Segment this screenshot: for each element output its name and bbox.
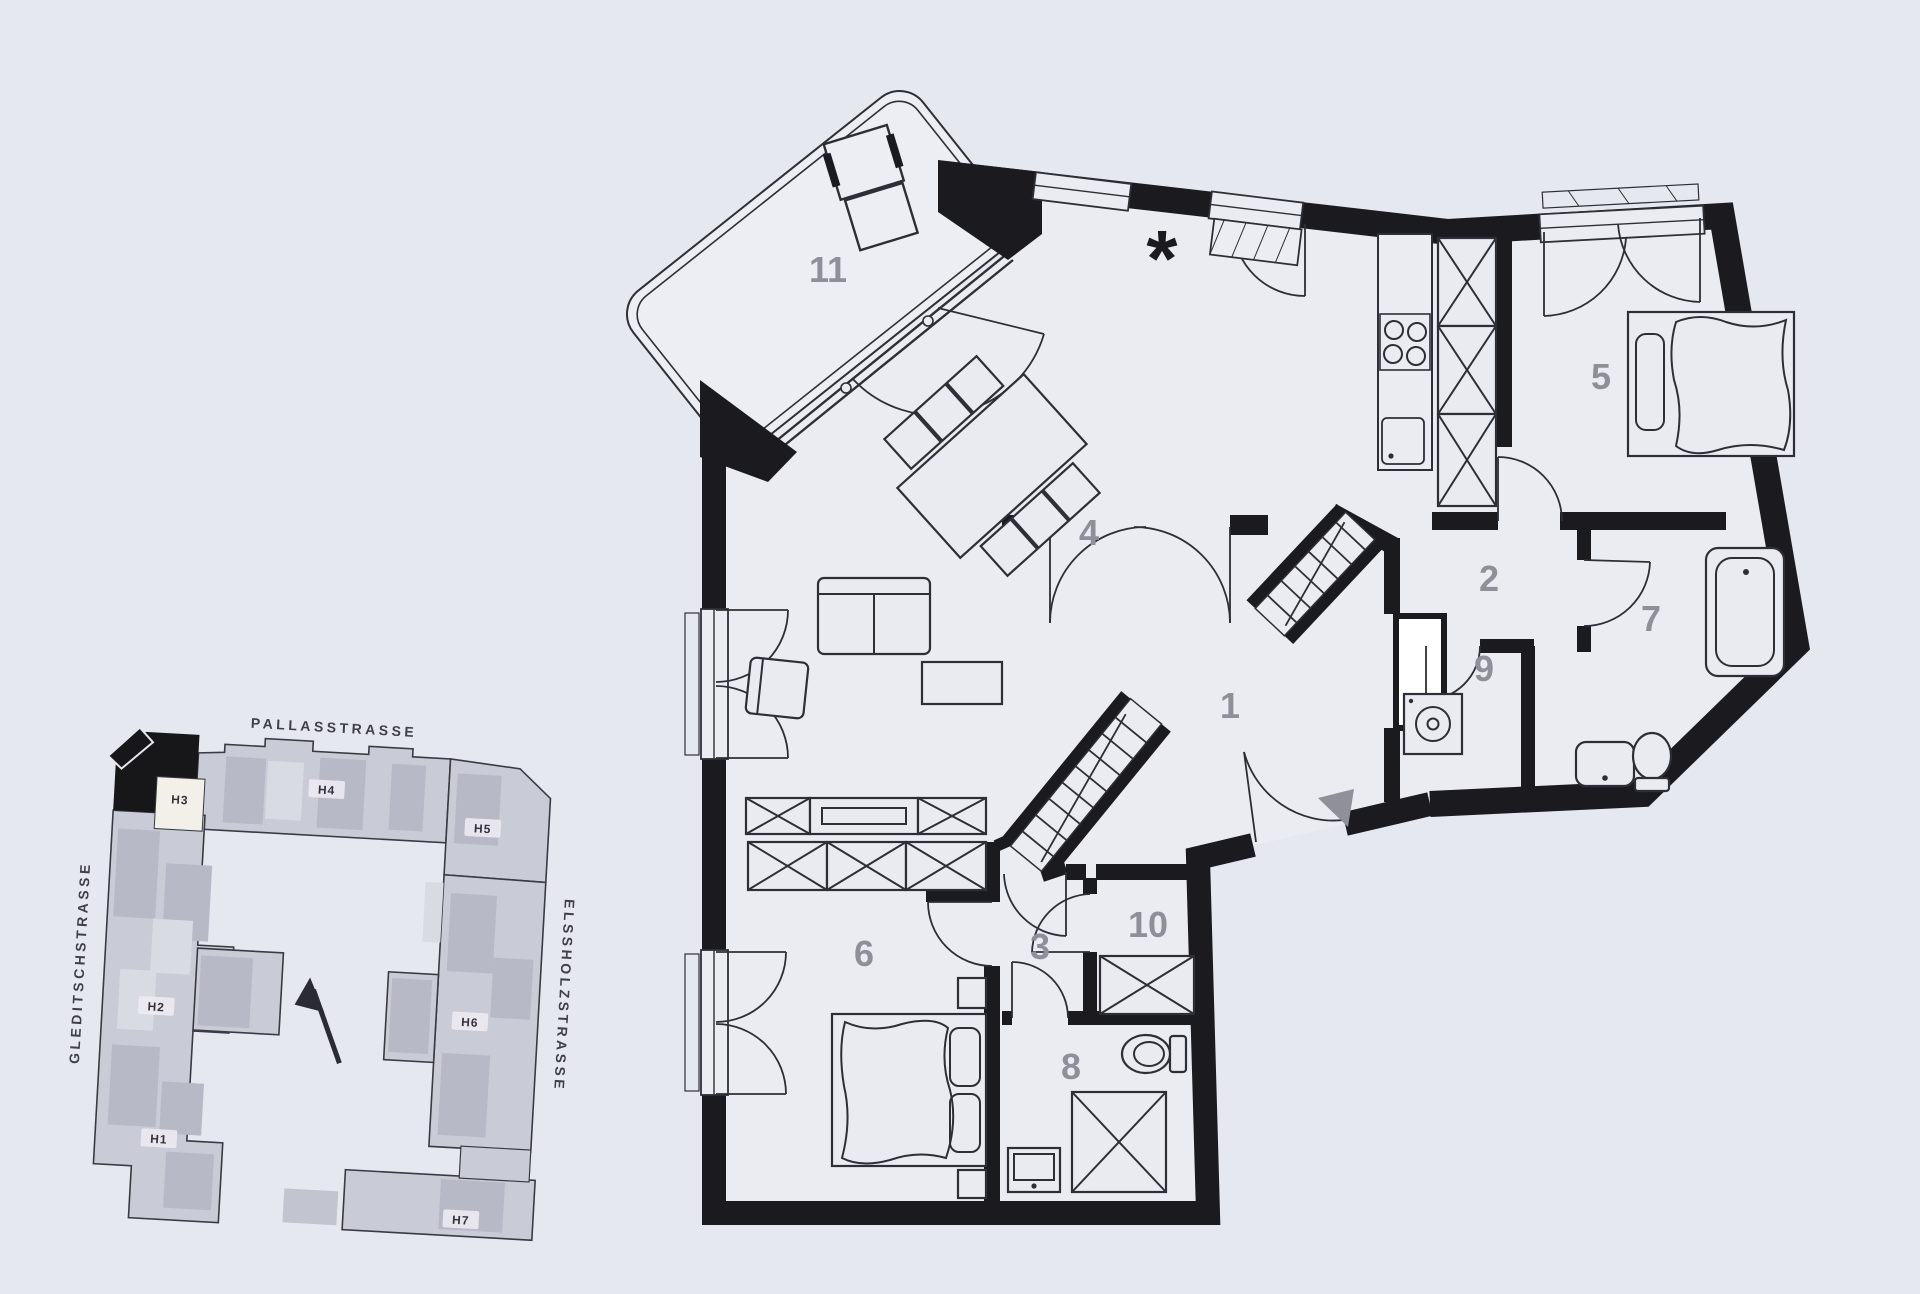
storage-shelf-10 bbox=[1100, 956, 1194, 1014]
room-label-1: 1 bbox=[1220, 685, 1240, 726]
floorplan-drawing: H3 H4 H5 H2 H6 H1 H7 PALLASSTRASSE GLEDI… bbox=[0, 0, 1920, 1294]
window-room5 bbox=[1538, 184, 1704, 243]
wardrobe-row-1 bbox=[746, 798, 986, 834]
nightstand-bottom bbox=[958, 1170, 986, 1198]
room-label-8: 8 bbox=[1061, 1046, 1081, 1087]
bedroom-5 bbox=[1628, 312, 1794, 456]
room-label-2: 2 bbox=[1479, 558, 1499, 599]
apartment-plan: 11 bbox=[615, 79, 1796, 1213]
building-label-h1: H1 bbox=[150, 1132, 168, 1147]
sink-7 bbox=[1576, 742, 1634, 786]
washing-machine-icon bbox=[1404, 694, 1462, 754]
stove bbox=[1380, 314, 1430, 370]
room-label-6: 6 bbox=[854, 933, 874, 974]
bathtub bbox=[1706, 548, 1784, 676]
north-arrow-icon bbox=[291, 977, 344, 1064]
building-label-h5: H5 bbox=[474, 821, 492, 836]
sofa bbox=[818, 578, 930, 654]
building-label-h7: H7 bbox=[452, 1213, 470, 1228]
street-label-pallasstrasse: PALLASSTRASSE bbox=[251, 715, 418, 740]
room-label-4: 4 bbox=[1079, 512, 1099, 553]
armchair bbox=[745, 657, 809, 719]
nightstand-top bbox=[958, 978, 986, 1008]
site-building-right-connector bbox=[459, 1146, 531, 1182]
room-label-7: 7 bbox=[1641, 598, 1661, 639]
floorplan-page: H3 H4 H5 H2 H6 H1 H7 PALLASSTRASSE GLEDI… bbox=[0, 0, 1920, 1294]
room-label-10: 10 bbox=[1128, 904, 1168, 945]
tall-cabinets bbox=[1438, 238, 1496, 506]
toilet-8 bbox=[1122, 1035, 1186, 1073]
site-plan: H3 H4 H5 H2 H6 H1 H7 PALLASSTRASSE GLEDI… bbox=[58, 706, 588, 1242]
street-label-elssholzstrasse: ELSSHOLZSTRASSE bbox=[551, 899, 578, 1093]
building-label-h4: H4 bbox=[318, 783, 336, 798]
toilet-7 bbox=[1633, 733, 1671, 791]
street-label-gleditschstrasse: GLEDITSCHSTRASSE bbox=[66, 861, 93, 1065]
room-label-5: 5 bbox=[1591, 356, 1611, 397]
building-label-h2: H2 bbox=[147, 999, 165, 1014]
coffee-table bbox=[922, 662, 1002, 704]
shower bbox=[1072, 1092, 1166, 1192]
window-living bbox=[685, 609, 728, 759]
wardrobe-row-2 bbox=[748, 842, 986, 890]
bed-6 bbox=[832, 1014, 986, 1166]
kitchen-sink bbox=[1382, 418, 1424, 464]
room-label-3: 3 bbox=[1030, 926, 1050, 967]
building-label-h6: H6 bbox=[461, 1015, 479, 1030]
sink-8 bbox=[1008, 1148, 1060, 1192]
room-label-9: 9 bbox=[1474, 648, 1494, 689]
building-label-h3: H3 bbox=[171, 792, 189, 807]
kitchen-star-icon: * bbox=[1146, 214, 1178, 303]
room-label-11: 11 bbox=[809, 249, 847, 290]
